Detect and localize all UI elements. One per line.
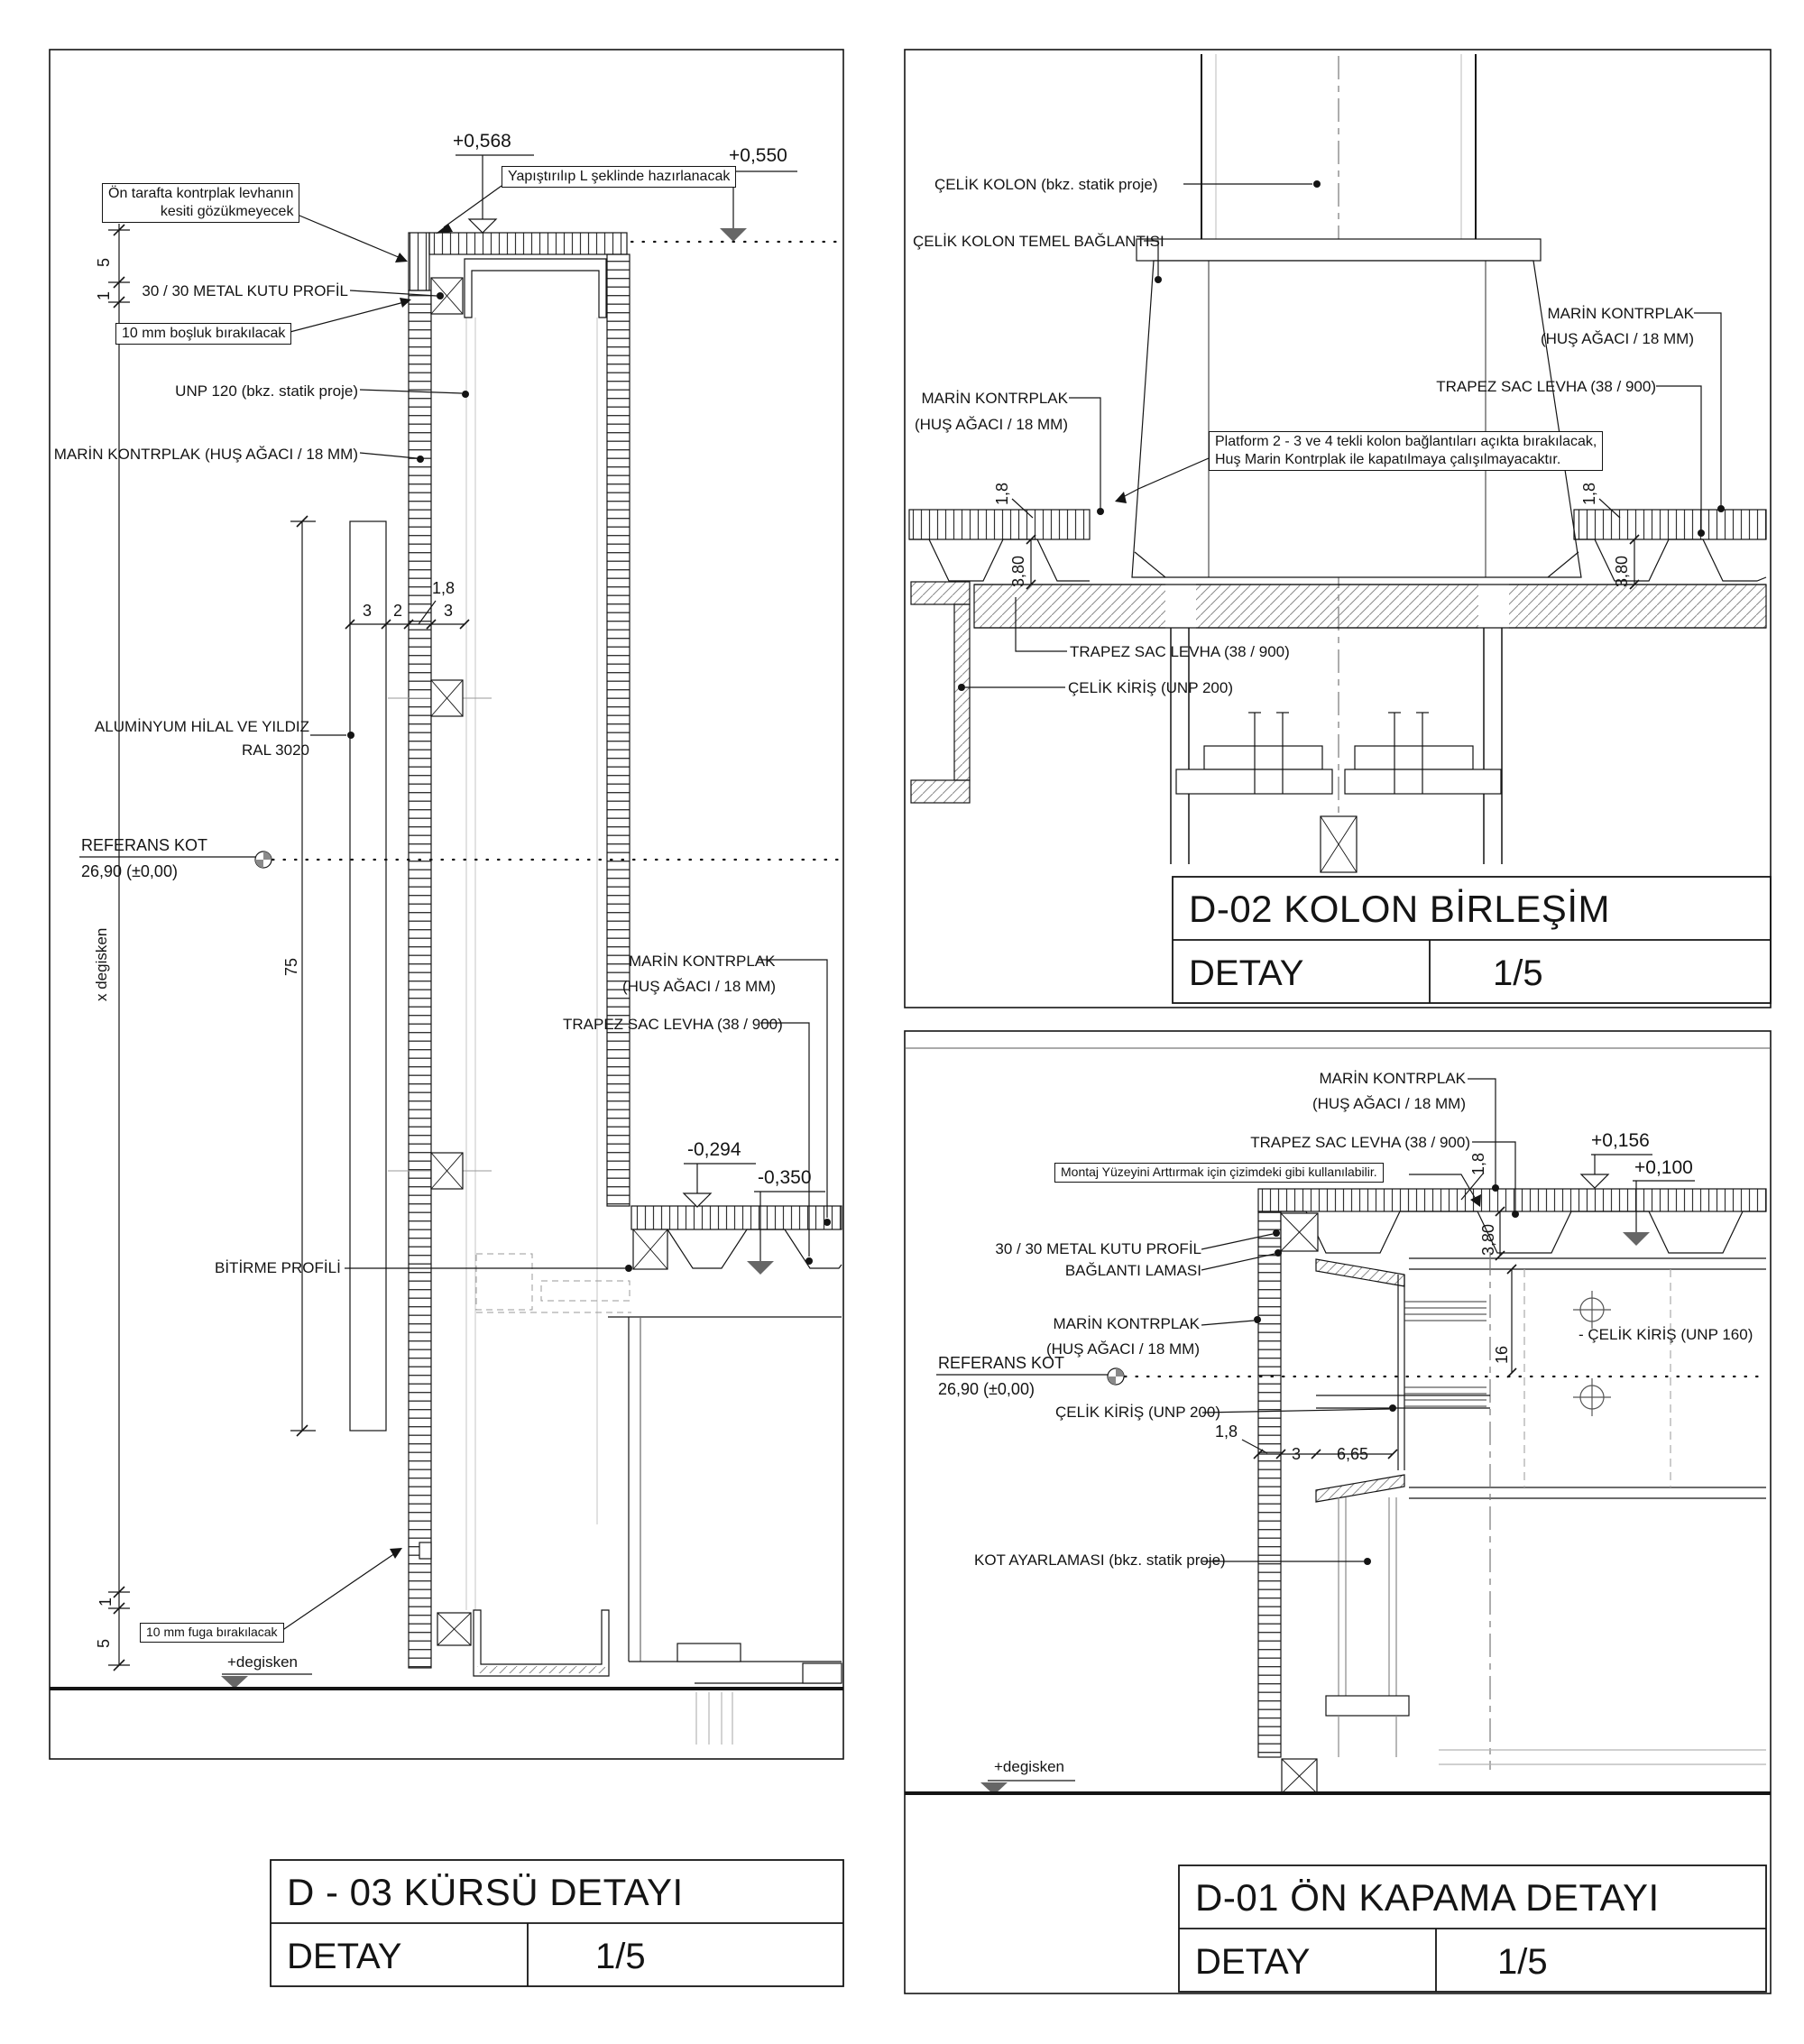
drawing-sheet: +0,568 Yapıştırılıp L şeklinde hazırlana… [0, 0, 1804, 2044]
dim-1-8-right: 1,8 [1579, 483, 1600, 505]
d01-scale: 1/5 [1497, 1939, 1548, 1984]
label-aluminyum-2: RAL 3020 [242, 741, 309, 760]
note-fuga: 10 mm fuga bırakılacak [140, 1623, 284, 1643]
label-temel-baglantisi: ÇELİK KOLON TEMEL BAĞLANTISI [913, 232, 1164, 251]
bolt-icon [1573, 1291, 1611, 1416]
level-marker-icon [221, 1674, 312, 1689]
label-referans-kot-2: 26,90 (±0,00) [938, 1379, 1035, 1400]
label-marin-right-2: (HUŞ AĞACI / 18 MM) [1541, 329, 1694, 348]
d01-type: DETAY [1195, 1939, 1310, 1984]
dim-1-8-left: 1,8 [992, 483, 1013, 505]
label-referans-kot-1: REFERANS KOT [81, 835, 207, 856]
label-referans-kot-1: REFERANS KOT [938, 1353, 1064, 1374]
label-aluminyum-1: ALUMİNYUM HİLAL VE YILDIZ [95, 717, 309, 736]
note-montaj: Montaj Yüzeyini Arttırmak için çizimdeki… [1054, 1163, 1384, 1183]
label-metal-kutu: 30 / 30 METAL KUTU PROFİL [995, 1239, 1201, 1258]
level-m0350-label: -0,350 [758, 1166, 812, 1190]
level-0568-label: +0,568 [453, 130, 511, 153]
label-marin-right-1: MARİN KONTRPLAK [1548, 304, 1694, 323]
dim-5-bottom: 5 [94, 1639, 115, 1648]
dim-3-left: 3 [363, 601, 372, 621]
box-profile-icon [431, 278, 471, 1645]
dim-75: 75 [281, 958, 302, 976]
level-m0294-label: -0,294 [687, 1138, 741, 1162]
dim-3-80-right: 3,80 [1612, 556, 1633, 587]
label-celik-kiris: ÇELİK KİRİŞ (UNP 200) [1068, 678, 1233, 697]
label-marin-kontrplak-left: MARİN KONTRPLAK (HUŞ AĞACI / 18 MM) [54, 445, 358, 464]
level-0156-label: +0,156 [1591, 1129, 1650, 1153]
label-unp120: UNP 120 (bkz. statik proje) [175, 382, 358, 401]
dim-1-8-bottom: 1,8 [1215, 1422, 1238, 1442]
d02-title: D-02 KOLON BİRLEŞİM [1189, 886, 1610, 934]
d03-title: D - 03 KÜRSÜ DETAYI [287, 1869, 684, 1917]
label-trapez-bottom: TRAPEZ SAC LEVHA (38 / 900) [1070, 642, 1290, 661]
label-celik-kiris-200: ÇELİK KİRİŞ (UNP 200) [1055, 1403, 1220, 1422]
dim-1-top: 1 [94, 291, 115, 300]
label-metal-kutu: 30 / 30 METAL KUTU PROFİL [142, 281, 348, 300]
note-line: Ön tarafta kontrplak levhanın [108, 185, 293, 203]
note-line: Platform 2 - 3 ve 4 tekli kolon bağlantı… [1215, 433, 1597, 451]
d03-type: DETAY [287, 1934, 401, 1979]
label-plus-degisken: +degisken [227, 1653, 298, 1671]
dim-3-80: 3,80 [1478, 1224, 1499, 1256]
label-trapez-sac: TRAPEZ SAC LEVHA (38 / 900) [563, 1015, 783, 1034]
label-baglanti-lamasi: BAĞLANTI LAMASI [1065, 1261, 1201, 1280]
level-0550-label: +0,550 [729, 144, 787, 168]
note-bosluk: 10 mm boşluk bırakılacak [115, 323, 291, 345]
dim-3-80-left: 3,80 [1008, 556, 1029, 587]
label-celik-kiris-160: - ÇELİK KİRİŞ (UNP 160) [1578, 1325, 1753, 1344]
label-marin-top-2: (HUŞ AĞACI / 18 MM) [1312, 1094, 1466, 1113]
label-marin-left-2: (HUŞ AĞACI / 18 MM) [915, 415, 1068, 434]
note-line: kesiti gözükmeyecek [108, 203, 293, 221]
dim-1-8: 1,8 [432, 578, 455, 599]
dim-6-65: 6,65 [1337, 1444, 1368, 1465]
label-marin-mid-2: (HUŞ AĞACI / 18 MM) [1046, 1340, 1200, 1358]
dim-16: 16 [1492, 1346, 1513, 1364]
label-x-degisken: x degisken [92, 928, 111, 1001]
label-bitirme-profili: BİTİRME PROFİLİ [215, 1258, 341, 1277]
dim-5-top: 5 [94, 258, 115, 267]
note-yapistirilip: Yapıştırılıp L şeklinde hazırlanacak [502, 166, 736, 188]
dim-2: 2 [393, 601, 402, 621]
d03-scale: 1/5 [595, 1934, 646, 1979]
label-celik-kolon: ÇELİK KOLON (bkz. statik proje) [934, 175, 1158, 194]
d02-type: DETAY [1189, 951, 1303, 996]
level-0100-label: +0,100 [1634, 1156, 1693, 1180]
label-marin-mid-1: MARİN KONTRPLAK [1054, 1314, 1200, 1333]
dim-3: 3 [1292, 1444, 1301, 1465]
label-referans-kot-2: 26,90 (±0,00) [81, 861, 178, 882]
label-trapez-top: TRAPEZ SAC LEVHA (38 / 900) [1250, 1133, 1470, 1152]
label-kot-ayarlamasi: KOT AYARLAMASI (bkz. statik proje) [974, 1551, 1226, 1570]
d01-title: D-01 ÖN KAPAMA DETAYI [1195, 1874, 1660, 1922]
label-marin-right-1: MARİN KONTRPLAK [629, 952, 775, 971]
label-marin-right-2: (HUŞ AĞACI / 18 MM) [622, 977, 776, 996]
dim-1-8-top: 1,8 [1468, 1153, 1489, 1175]
label-marin-top-1: MARİN KONTRPLAK [1320, 1069, 1466, 1088]
note-platform: Platform 2 - 3 ve 4 tekli kolon bağlantı… [1209, 431, 1603, 471]
label-plus-degisken: +degisken [994, 1757, 1064, 1776]
label-marin-left-1: MARİN KONTRPLAK [922, 389, 1068, 408]
dim-3-right: 3 [444, 601, 453, 621]
note-on-tarafta: Ön tarafta kontrplak levhanın kesiti göz… [102, 183, 299, 223]
cad-linework [0, 0, 1804, 2044]
note-line: Huş Marin Kontrplak ile kapatılmaya çalı… [1215, 451, 1597, 469]
d02-scale: 1/5 [1493, 951, 1543, 996]
label-trapez-right: TRAPEZ SAC LEVHA (38 / 900) [1436, 377, 1656, 396]
dim-1-bottom: 1 [96, 1597, 116, 1607]
